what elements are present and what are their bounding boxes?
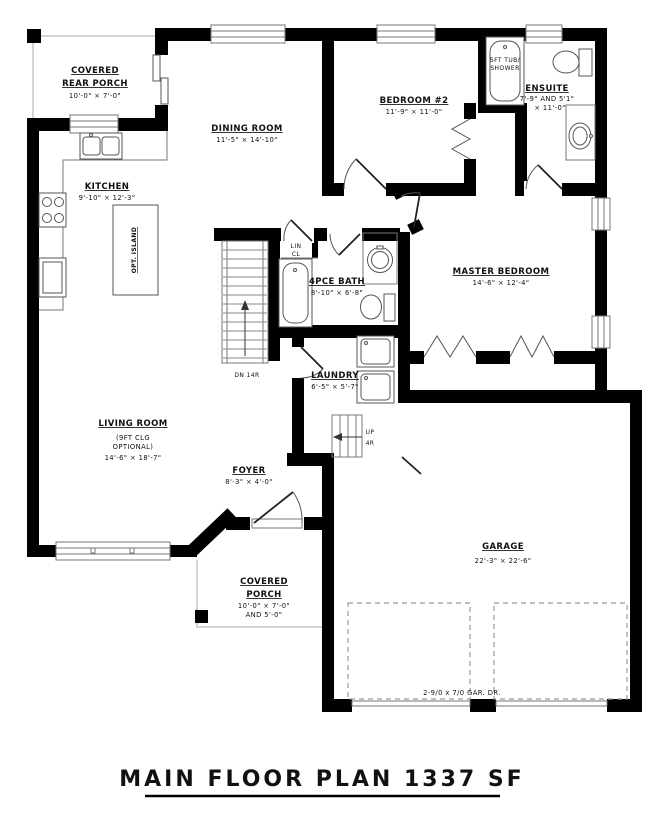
rear-porch-label-1: COVERED: [71, 66, 119, 76]
master-window-lower: [592, 316, 610, 348]
garage-label: GARAGE: [482, 542, 524, 552]
floor-plan-sheet: COVERED REAR PORCH 10'-0" × 7'-0" DINING…: [0, 0, 662, 820]
ensuite-vanity-sink: [566, 105, 595, 160]
front-porch-label-2: PORCH: [246, 590, 281, 600]
bedroom2-window: [377, 25, 435, 43]
garage-door-right: [496, 701, 607, 706]
bathtub-main: [279, 259, 312, 327]
dining-dims: 11'-5" × 14'-10": [216, 136, 278, 144]
rear-porch-label-2: REAR PORCH: [62, 79, 128, 89]
kitchen-dims: 9'-10" × 12'-3": [79, 194, 136, 202]
front-porch-post: [195, 610, 208, 623]
dining-label: DINING ROOM: [211, 124, 282, 134]
living-dims: 14'-6" × 18'-7": [105, 454, 162, 462]
stairs-down-label: DN 14R: [234, 372, 259, 379]
stove: [39, 193, 66, 227]
foyer-dims: 8'-3" × 4'-0": [225, 478, 272, 486]
bath-toilet: [361, 294, 396, 321]
master-label: MASTER BEDROOM: [453, 267, 550, 277]
washer: [357, 336, 394, 367]
ensuite-window: [526, 25, 562, 43]
laundry-label: LAUNDRY: [311, 371, 359, 381]
stairs-up-risers: 4R: [366, 440, 375, 447]
stairs-up-label: UP: [366, 429, 375, 436]
front-porch-dims-1: 10'-0" × 7'-0": [238, 602, 290, 610]
rear-patio-slider: [153, 55, 168, 104]
rear-porch-post: [27, 29, 41, 43]
kitchen-sink-window: [70, 115, 118, 133]
living-note-2: OPTIONAL): [113, 443, 154, 451]
bath-dims: 8'-10" × 6'-8": [311, 289, 363, 297]
labels: COVERED REAR PORCH 10'-0" × 7'-0" DINING…: [62, 57, 574, 796]
tub-label-2: SHOWER: [490, 65, 519, 72]
bath-label: 4PCE BATH: [309, 277, 365, 287]
garage-door-left: [352, 701, 470, 706]
ensuite-toilet: [553, 49, 592, 76]
garage-man-door: [402, 457, 421, 474]
ensuite-label: ENSUITE: [525, 84, 569, 94]
walls: [27, 28, 642, 712]
kitchen-label: KITCHEN: [85, 182, 130, 192]
bedroom2-dims: 11'-9" × 11'-0": [386, 108, 443, 116]
master-window-upper: [592, 198, 610, 230]
rear-porch-dims: 10'-0" × 7'-0": [69, 92, 121, 100]
linen-label-1: LIN: [291, 243, 302, 250]
laundry-dims: 6'-5" × 5'-7": [311, 383, 358, 391]
living-room-window: [56, 542, 170, 560]
stairs-up: [332, 415, 362, 457]
kitchen-sink: [80, 133, 122, 159]
linen-label-2: CL: [292, 251, 301, 258]
floor-plan-drawing: COVERED REAR PORCH 10'-0" × 7'-0" DINING…: [0, 0, 662, 820]
front-porch-label-1: COVERED: [240, 577, 288, 587]
garage-stall-left: [348, 603, 470, 699]
living-label: LIVING ROOM: [98, 419, 167, 429]
dining-window: [211, 25, 285, 43]
fridge: [39, 258, 66, 297]
master-dims: 14'-6" × 12'-4": [473, 279, 530, 287]
ensuite-dims-2: × 11'-0": [534, 104, 565, 112]
island-label: OPT. ISLAND: [131, 227, 138, 273]
tub-label-1: 5FT TUB/: [490, 57, 521, 64]
bedroom2-closet-bifold: [452, 119, 470, 159]
bedroom2-label: BEDROOM #2: [380, 96, 449, 106]
sheet-title: MAIN FLOOR PLAN 1337 SF: [119, 767, 524, 792]
dryer: [357, 371, 394, 403]
front-porch-dims-2: AND 5'-0": [246, 611, 283, 619]
foyer-label: FOYER: [232, 466, 265, 476]
garage-door-label: 2-9/0 x 7/0 GAR. DR.: [423, 689, 501, 697]
garage-dims: 22'-3" × 22'-6": [475, 557, 532, 565]
stairs-up-arrow: [333, 433, 342, 441]
stairs-down: [222, 241, 268, 363]
rear-porch-slab: [33, 36, 155, 118]
ensuite-dims-1: 7'-9" AND 5'1": [520, 95, 575, 103]
fixtures: [39, 37, 595, 403]
living-note-1: (9FT CLG: [116, 434, 150, 442]
stairs-down-arrow: [241, 300, 249, 310]
garage-stall-right: [494, 603, 627, 699]
